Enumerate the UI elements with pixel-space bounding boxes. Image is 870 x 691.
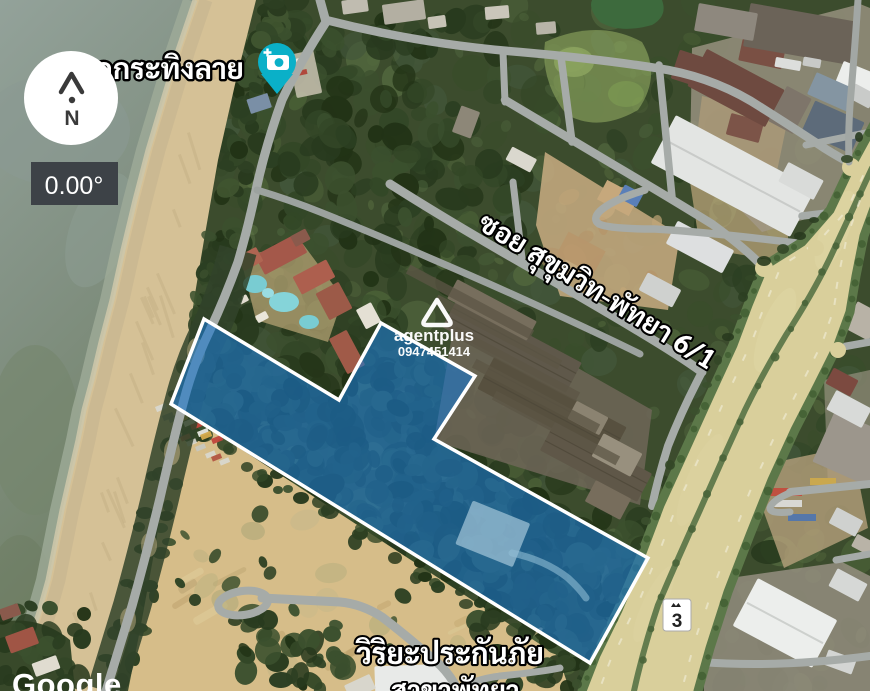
svg-text:agentplus: agentplus [394, 326, 474, 345]
svg-text:3: 3 [672, 611, 683, 632]
svg-text:0.00°: 0.00° [45, 172, 104, 200]
svg-text:N: N [64, 107, 79, 130]
svg-text:0947451414: 0947451414 [398, 344, 471, 359]
svg-text:Google: Google [12, 667, 122, 691]
